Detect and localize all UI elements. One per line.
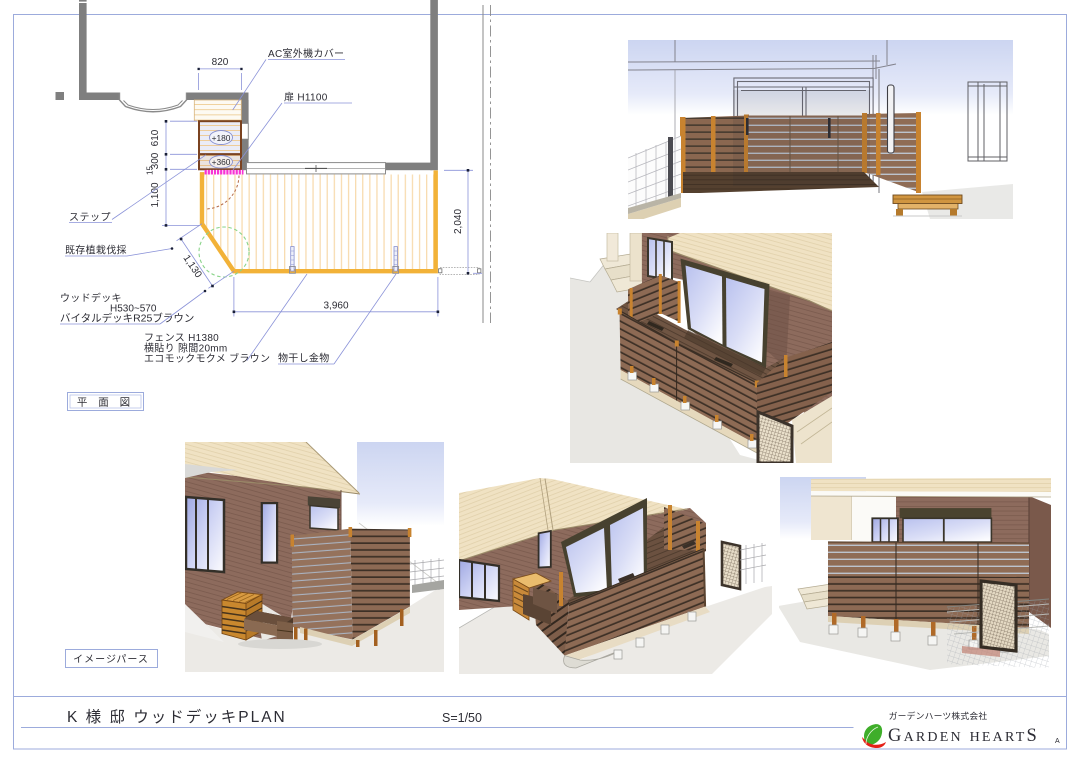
svg-text:+180: +180 (212, 133, 231, 143)
svg-text:フェンス H1380: フェンス H1380 (144, 333, 219, 344)
svg-text:+360: +360 (212, 157, 231, 167)
svg-text:2,040: 2,040 (453, 209, 464, 234)
svg-text:横貼り 隙間20mm: 横貼り 隙間20mm (144, 342, 228, 355)
svg-text:15: 15 (146, 166, 155, 175)
svg-text:ガーデンハーツ株式会社: ガーデンハーツ株式会社 (889, 710, 988, 721)
svg-text:既存植栽伐採: 既存植栽伐採 (65, 244, 127, 257)
svg-text:物干し金物: 物干し金物 (278, 352, 330, 365)
svg-text:820: 820 (212, 57, 229, 68)
svg-text:平 面 図: 平 面 図 (77, 397, 134, 409)
svg-text:S=1/50: S=1/50 (442, 711, 482, 725)
svg-text:イメージパース: イメージパース (73, 654, 149, 666)
svg-text:扉 H1100: 扉 H1100 (284, 91, 328, 104)
svg-text:A: A (1055, 738, 1060, 745)
svg-text:ステップ: ステップ (69, 212, 111, 224)
svg-text:AC室外機カバー: AC室外機カバー (268, 47, 344, 60)
svg-text:610: 610 (150, 129, 161, 146)
svg-text:1,100: 1,100 (150, 182, 161, 207)
svg-text:3,960: 3,960 (323, 301, 348, 312)
svg-text:K 様 邸 ウッドデッキPLAN: K 様 邸 ウッドデッキPLAN (67, 707, 287, 726)
